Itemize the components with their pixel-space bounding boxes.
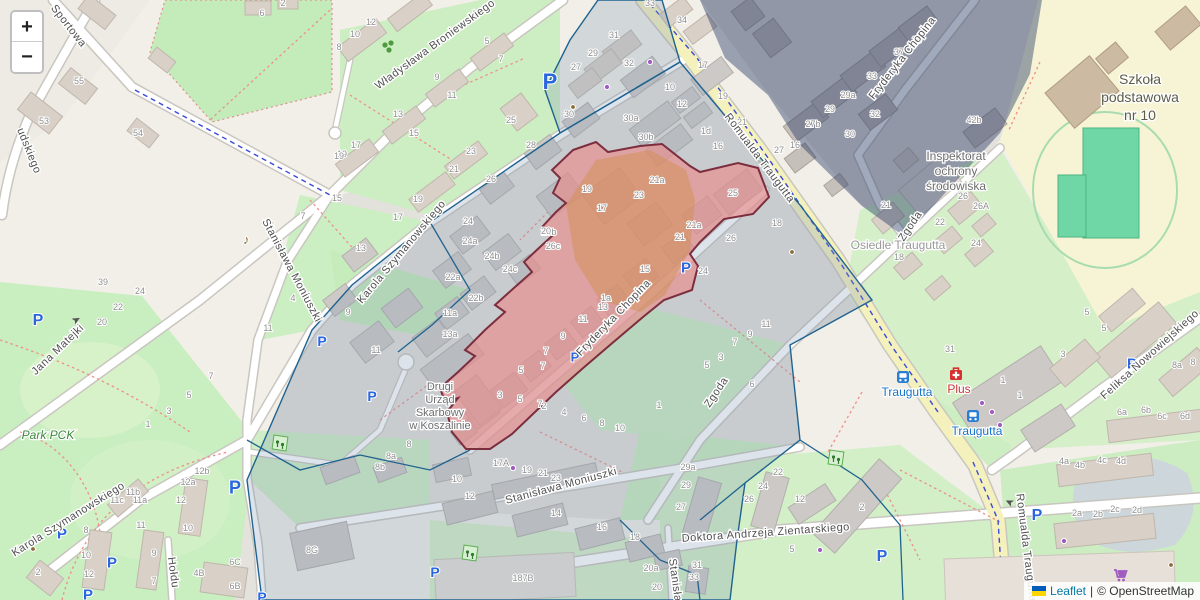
house-number: 1 bbox=[656, 400, 661, 410]
house-number: 24 bbox=[698, 266, 708, 276]
house-number: 13 bbox=[393, 109, 403, 119]
house-number: 10 bbox=[452, 474, 462, 484]
music-school-icon: ♪ bbox=[243, 232, 250, 247]
house-number: 5 bbox=[518, 365, 523, 375]
house-number: 21 bbox=[881, 200, 891, 210]
shop-dot-icon bbox=[1061, 538, 1066, 543]
poi-label: Osiedle Traugutta bbox=[851, 238, 946, 252]
house-number: 3 bbox=[497, 390, 502, 400]
house-number: 11a bbox=[443, 308, 457, 318]
house-number: 7 bbox=[208, 371, 213, 381]
parking-icon: P bbox=[33, 312, 44, 329]
house-number: 33 bbox=[645, 0, 655, 8]
house-number: 19 bbox=[413, 194, 423, 204]
parking-icon: P bbox=[430, 564, 439, 580]
house-number: 3 bbox=[166, 406, 171, 416]
house-number: 27 bbox=[676, 502, 686, 512]
house-number: 6C bbox=[229, 557, 241, 567]
house-number: 1 bbox=[1000, 375, 1005, 385]
openstreetmap-link[interactable]: © OpenStreetMap bbox=[1097, 584, 1194, 598]
house-number: 12a bbox=[180, 477, 195, 487]
house-number: 26c bbox=[546, 241, 561, 251]
house-number: 12 bbox=[176, 495, 186, 505]
map-canvas[interactable]: 5553546281012579111315171923211925262728… bbox=[0, 0, 1200, 600]
poi-dot-icon bbox=[790, 250, 795, 255]
house-number: 29a bbox=[680, 462, 695, 472]
house-number: 29 bbox=[681, 480, 691, 490]
house-number: 6B bbox=[229, 581, 240, 591]
house-number: 39 bbox=[98, 277, 108, 287]
house-number: 27 bbox=[571, 62, 581, 72]
house-number: 33 bbox=[867, 71, 877, 81]
house-number: 6c bbox=[1157, 411, 1167, 421]
house-number: 34 bbox=[677, 15, 687, 25]
house-number: 7 bbox=[498, 54, 503, 64]
house-number: 8 bbox=[1190, 357, 1195, 367]
house-number: 18 bbox=[894, 252, 904, 262]
house-number: 21a bbox=[686, 220, 701, 230]
house-number: 13 bbox=[598, 302, 608, 312]
house-number: 11 bbox=[578, 314, 587, 324]
house-number: 20 bbox=[652, 582, 662, 592]
building bbox=[245, 1, 271, 15]
house-number: 7 bbox=[543, 346, 548, 356]
playground-icon bbox=[462, 545, 478, 561]
house-number: 16 bbox=[713, 141, 723, 151]
house-number: 11 bbox=[761, 319, 770, 329]
shop-dot-icon bbox=[817, 547, 822, 552]
house-number: 7 bbox=[732, 337, 737, 347]
house-number: 24c bbox=[503, 264, 518, 274]
house-number: 27 bbox=[774, 145, 784, 155]
house-number: 22b bbox=[468, 293, 483, 303]
house-number: 26 bbox=[744, 494, 754, 504]
house-number: 19 bbox=[334, 151, 344, 161]
house-number: 1 bbox=[1017, 390, 1022, 400]
house-number: 8G bbox=[306, 545, 318, 555]
house-number: 9 bbox=[151, 548, 156, 558]
house-number: 6 bbox=[749, 379, 754, 389]
house-number: 19 bbox=[522, 465, 532, 475]
house-number: 8a bbox=[386, 451, 396, 461]
poi-dot-icon bbox=[1169, 563, 1174, 568]
house-number: 187B bbox=[512, 573, 533, 583]
house-number: 23 bbox=[466, 146, 476, 156]
house-number: 24 bbox=[135, 286, 145, 296]
house-number: 11 bbox=[263, 323, 272, 333]
attribution-bar: Leaflet | © OpenStreetMap bbox=[1024, 582, 1200, 600]
house-number: 9 bbox=[434, 72, 439, 82]
house-number: 4a bbox=[1059, 456, 1069, 466]
parking-icon: P bbox=[83, 586, 93, 600]
house-number: 1 bbox=[145, 419, 150, 429]
house-number: 29 bbox=[825, 104, 835, 114]
parking-icon: P bbox=[257, 589, 266, 600]
house-number: 31 bbox=[945, 344, 955, 354]
house-number: 17 bbox=[351, 140, 361, 150]
house-number: 11 bbox=[371, 345, 380, 355]
poi-label: Inspektoratochronyśrodowiska bbox=[926, 149, 986, 193]
house-number: 19 bbox=[582, 184, 592, 194]
zoom-out-button[interactable]: − bbox=[12, 42, 42, 72]
house-number: 55 bbox=[74, 76, 84, 86]
house-number: 19 bbox=[718, 91, 728, 101]
house-number: 7 bbox=[151, 576, 156, 586]
house-number: 5 bbox=[186, 390, 191, 400]
house-number: 18 bbox=[630, 532, 640, 542]
house-number: 4b bbox=[1075, 460, 1085, 470]
house-number: 12 bbox=[366, 17, 376, 27]
shop-dot-icon bbox=[979, 400, 984, 405]
shop-dot-icon bbox=[647, 59, 652, 64]
house-number: 22a bbox=[445, 272, 460, 282]
house-number: 16 bbox=[597, 522, 607, 532]
house-number: 5 bbox=[517, 394, 522, 404]
parking-icon: P bbox=[1032, 507, 1043, 524]
house-number: 10 bbox=[665, 82, 675, 92]
house-number: 7 bbox=[540, 361, 545, 371]
house-number: 5 bbox=[1101, 323, 1106, 333]
playground-icon bbox=[828, 450, 844, 466]
house-number: 15 bbox=[640, 264, 650, 274]
house-number: 8 bbox=[336, 42, 341, 52]
house-number: 11a bbox=[133, 495, 147, 505]
house-number: 9 bbox=[560, 331, 565, 341]
house-number: 26 bbox=[486, 174, 496, 184]
house-number: 28 bbox=[526, 140, 536, 150]
playground-icon bbox=[272, 435, 288, 451]
house-number: 30a bbox=[623, 113, 638, 123]
shop-dot-icon bbox=[510, 465, 515, 470]
house-number: 20a bbox=[643, 563, 658, 573]
house-number: 53 bbox=[39, 116, 49, 126]
house-number: 4B bbox=[193, 568, 204, 578]
house-number: 24 bbox=[758, 481, 768, 491]
house-number: 10 bbox=[183, 523, 193, 533]
house-number: 6a bbox=[1117, 407, 1127, 417]
house-number: 23 bbox=[634, 190, 644, 200]
house-number: 42b bbox=[966, 115, 981, 125]
house-number: 2 bbox=[35, 567, 40, 577]
house-number: 3 bbox=[1060, 349, 1065, 359]
house-number: 12 bbox=[84, 569, 94, 579]
bus-stop-label: Traugutta bbox=[952, 424, 1003, 438]
house-number: 24 bbox=[971, 238, 981, 248]
shop-dot-icon bbox=[604, 84, 609, 89]
house-number: 6d bbox=[1180, 411, 1190, 421]
house-number: 12 bbox=[795, 494, 805, 504]
house-number: 2 bbox=[859, 502, 864, 512]
house-number: 30 bbox=[564, 109, 574, 119]
house-number: 22 bbox=[935, 217, 945, 227]
house-number: 5 bbox=[1084, 307, 1089, 317]
house-number: 17 bbox=[597, 203, 607, 213]
house-number: 11 bbox=[447, 90, 456, 100]
house-number: 6 bbox=[259, 8, 264, 18]
house-number: 20 bbox=[97, 317, 107, 327]
house-number: 4 bbox=[290, 293, 295, 303]
house-number: 24 bbox=[463, 216, 473, 226]
house-number: 25 bbox=[506, 115, 516, 125]
house-number: 8b bbox=[375, 462, 385, 472]
house-number: 6b bbox=[1141, 405, 1151, 415]
house-number: 2b bbox=[1093, 509, 1103, 519]
building bbox=[200, 562, 248, 598]
house-number: 32 bbox=[870, 109, 880, 119]
bus-stop-label: Traugutta bbox=[882, 385, 933, 399]
house-number: 21 bbox=[538, 468, 548, 478]
house-number: 5 bbox=[704, 360, 709, 370]
house-number: 27b bbox=[805, 119, 820, 129]
house-number: 17 bbox=[393, 212, 403, 222]
house-number: 7 bbox=[300, 211, 305, 221]
house-number: 31 bbox=[692, 560, 702, 570]
house-number: 54 bbox=[133, 128, 143, 138]
house-number: 12b bbox=[194, 466, 209, 476]
leaflet-link[interactable]: Leaflet bbox=[1050, 584, 1086, 598]
poi-dot-icon bbox=[571, 105, 576, 110]
house-number: 8 bbox=[599, 418, 604, 428]
poi-label: Park PCK bbox=[22, 428, 76, 442]
ukraine-flag-icon bbox=[1032, 586, 1046, 596]
house-number: 26A bbox=[973, 201, 989, 211]
house-number: 30b bbox=[638, 132, 653, 142]
house-number: 9 bbox=[345, 307, 350, 317]
house-number: 17 bbox=[698, 60, 708, 70]
house-number: 26 bbox=[726, 233, 736, 243]
house-number: 24b bbox=[484, 251, 499, 261]
house-number: 33 bbox=[689, 572, 699, 582]
house-number: 2c bbox=[1110, 504, 1120, 514]
house-number: 5 bbox=[789, 544, 794, 554]
house-number: 8 bbox=[83, 525, 88, 535]
parking-icon: P bbox=[543, 69, 558, 94]
house-number: 25 bbox=[728, 188, 738, 198]
house-number: 8 bbox=[406, 439, 411, 449]
house-number: 4c bbox=[1097, 455, 1107, 465]
house-number: 12 bbox=[677, 99, 687, 109]
parking-icon: P bbox=[107, 554, 117, 571]
house-number: 29 bbox=[588, 48, 598, 58]
house-number: 12 bbox=[465, 491, 475, 501]
house-number: 2a bbox=[1072, 508, 1082, 518]
house-number: 4d bbox=[1116, 456, 1126, 466]
house-number: 15 bbox=[409, 128, 419, 138]
shop-dot-icon bbox=[989, 409, 994, 414]
parking-icon: P bbox=[877, 548, 888, 565]
house-number: 30 bbox=[845, 129, 855, 139]
house-number: 21 bbox=[449, 164, 459, 174]
house-number: 2d bbox=[1132, 505, 1142, 515]
attribution-separator: | bbox=[1090, 584, 1093, 598]
house-number: 22 bbox=[773, 467, 783, 477]
pharmacy-label: Plus bbox=[947, 382, 970, 396]
house-number: 22 bbox=[113, 302, 123, 312]
house-number: 4 bbox=[561, 407, 566, 417]
zoom-control: + − bbox=[10, 10, 44, 74]
house-number: 10 bbox=[615, 423, 625, 433]
house-number: 6 bbox=[581, 413, 586, 423]
house-number: 11 bbox=[136, 520, 145, 530]
zoom-in-button[interactable]: + bbox=[12, 12, 42, 42]
house-number: 13a bbox=[442, 329, 457, 339]
house-number: 14 bbox=[551, 508, 561, 518]
house-number: 13 bbox=[356, 243, 366, 253]
parking-icon: P bbox=[367, 388, 376, 404]
house-number: 24a bbox=[462, 236, 477, 246]
house-number: 9 bbox=[747, 329, 752, 339]
house-number: 31 bbox=[609, 30, 619, 40]
house-number: 21 bbox=[675, 232, 685, 242]
house-number: 8a bbox=[1172, 360, 1182, 370]
house-number: 2 bbox=[280, 0, 285, 8]
house-number: 17A bbox=[493, 458, 509, 468]
house-number: 21a bbox=[649, 175, 664, 185]
shop-dot-icon bbox=[997, 422, 1002, 427]
house-number: 32 bbox=[624, 58, 634, 68]
house-number: 10 bbox=[350, 29, 360, 39]
house-number: 16 bbox=[790, 140, 800, 150]
house-number: 5 bbox=[484, 36, 489, 46]
house-number: 15 bbox=[332, 193, 342, 203]
parking-icon: P bbox=[681, 259, 691, 276]
house-number: 10 bbox=[81, 550, 91, 560]
house-number: 1d bbox=[701, 126, 711, 136]
parking-icon: P bbox=[317, 333, 326, 349]
parking-icon: P bbox=[229, 477, 241, 497]
house-number: 7 bbox=[537, 399, 542, 409]
house-number: 29a bbox=[840, 90, 855, 100]
house-number: 18 bbox=[772, 218, 782, 228]
house-number: 3 bbox=[718, 352, 723, 362]
house-number: 20 bbox=[541, 226, 551, 236]
